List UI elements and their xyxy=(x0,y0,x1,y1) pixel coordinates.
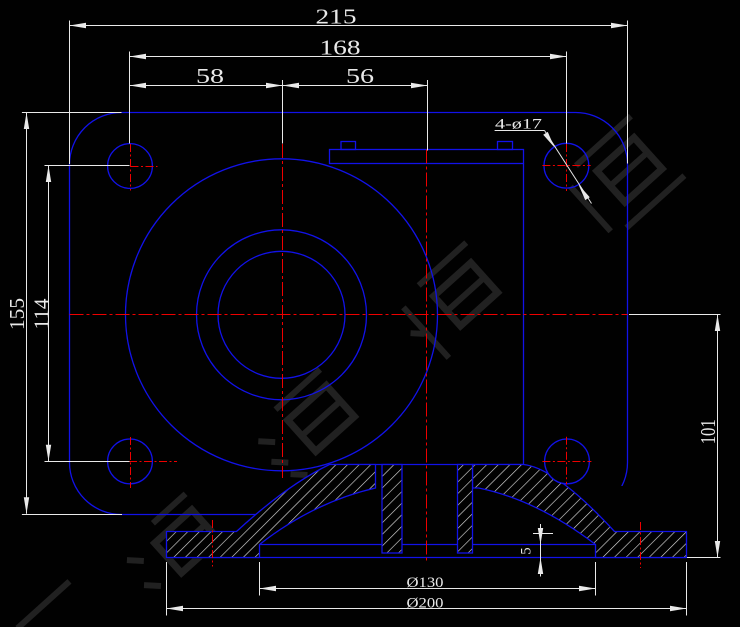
svg-text:101: 101 xyxy=(696,419,720,444)
svg-text:155: 155 xyxy=(5,298,29,330)
svg-text:Ø200: Ø200 xyxy=(407,596,444,612)
svg-text:4-ø17: 4-ø17 xyxy=(495,116,543,132)
svg-text:5: 5 xyxy=(519,547,535,554)
svg-text:56: 56 xyxy=(346,64,374,88)
svg-text:215: 215 xyxy=(316,5,357,29)
svg-text:168: 168 xyxy=(320,36,361,60)
svg-text:114: 114 xyxy=(30,298,54,329)
svg-text:58: 58 xyxy=(196,64,224,88)
svg-text:Ø130: Ø130 xyxy=(407,575,444,591)
